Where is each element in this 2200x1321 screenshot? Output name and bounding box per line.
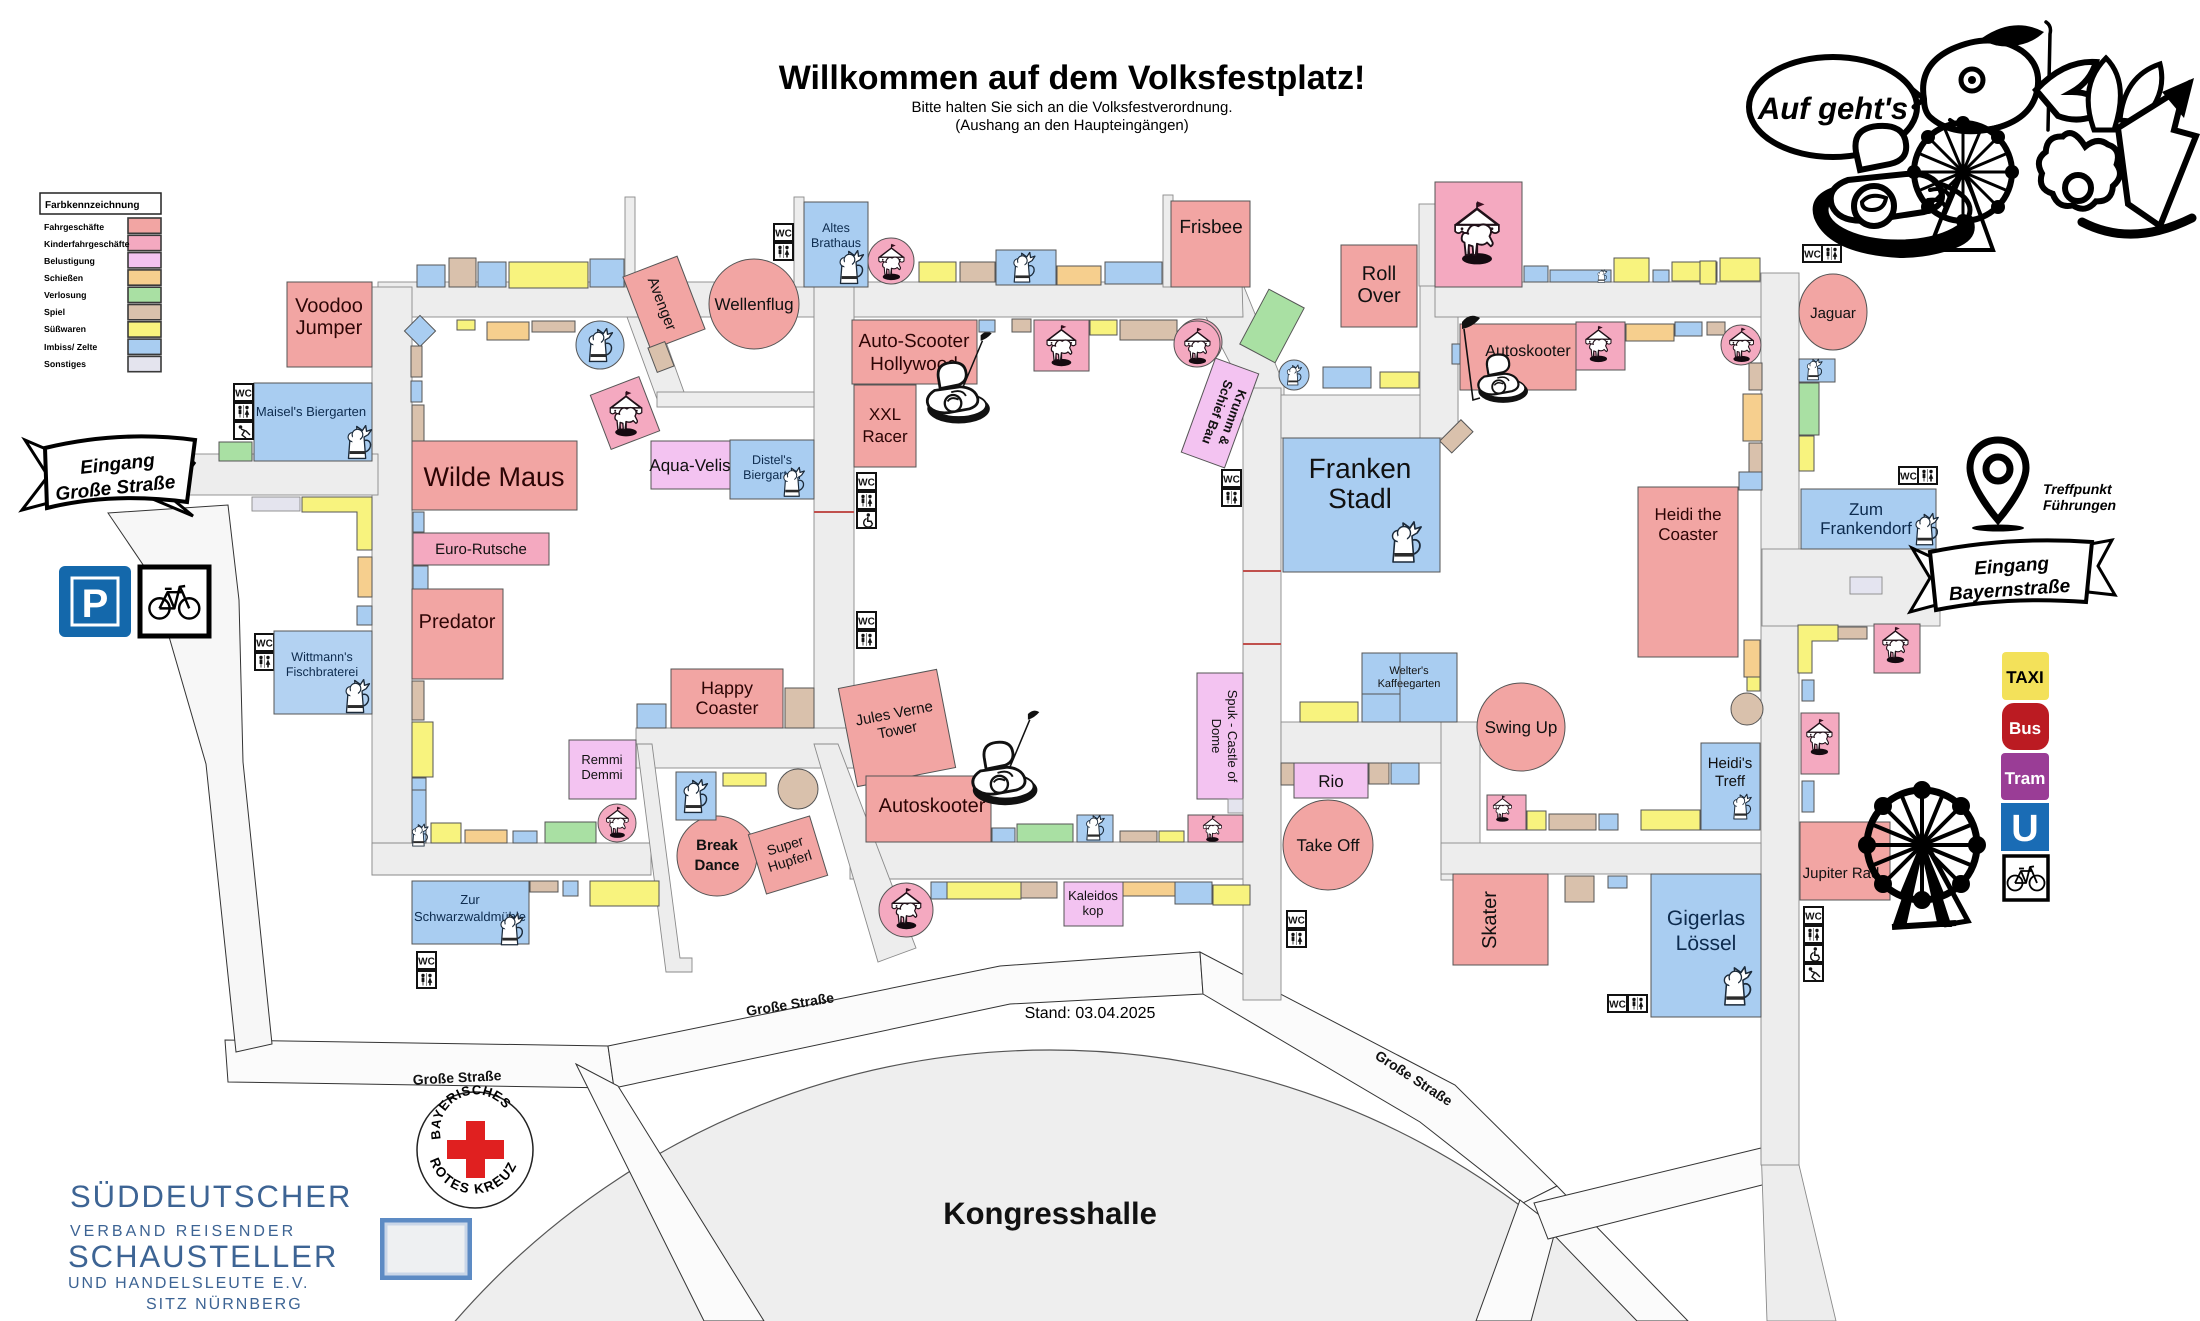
svg-text:Zum: Zum [1849,500,1883,519]
svg-text:Wilde Maus: Wilde Maus [423,462,564,492]
svg-text:Verlosung: Verlosung [44,290,87,300]
svg-text:kop: kop [1083,903,1104,918]
svg-text:Wellenflug: Wellenflug [714,295,793,314]
svg-text:SITZ NÜRNBERG: SITZ NÜRNBERG [146,1295,303,1313]
svg-text:Happy: Happy [701,678,753,698]
svg-text:Heidi the: Heidi the [1654,505,1721,524]
svg-text:Autoskooter: Autoskooter [879,795,986,817]
svg-text:Frisbee: Frisbee [1179,217,1242,238]
svg-text:Swing Up: Swing Up [1485,718,1558,737]
svg-text:Racer: Racer [862,427,908,446]
svg-text:SCHAUSTELLER: SCHAUSTELLER [68,1239,338,1274]
svg-text:Wittmann's: Wittmann's [291,650,352,664]
svg-text:Brathaus: Brathaus [811,236,861,250]
svg-text:Fischbraterei: Fischbraterei [286,665,358,679]
svg-text:Bitte halten Sie sich an die V: Bitte halten Sie sich an die Volksfestve… [911,99,1232,116]
svg-text:Predator: Predator [419,611,496,633]
svg-text:P: P [82,582,109,626]
svg-text:Remmi: Remmi [581,752,622,767]
svg-text:Imbiss/ Zelte: Imbiss/ Zelte [44,342,97,352]
svg-text:Rio: Rio [1318,772,1344,791]
svg-text:Heidi's: Heidi's [1708,755,1753,772]
svg-text:U: U [2011,808,2038,850]
svg-text:Coaster: Coaster [695,698,758,718]
svg-text:Stadl: Stadl [1328,483,1392,514]
svg-text:Sonstiges: Sonstiges [44,359,86,369]
svg-text:Führungen: Führungen [2043,497,2116,513]
svg-text:Take Off: Take Off [1297,836,1360,855]
svg-text:Lössel: Lössel [1676,932,1737,955]
svg-text:Schießen: Schießen [44,273,83,283]
svg-text:Bus: Bus [2009,719,2041,738]
svg-text:Skater: Skater [1479,891,1501,949]
svg-text:Belustigung: Belustigung [44,256,95,266]
svg-text:Auf geht's: Auf geht's [1757,91,1908,126]
svg-text:Coaster: Coaster [1658,525,1718,544]
svg-text:Stand: 03.04.2025: Stand: 03.04.2025 [1025,1005,1156,1022]
svg-text:Treffpunkt: Treffpunkt [2043,481,2113,497]
svg-text:Jaguar: Jaguar [1810,305,1856,322]
svg-text:Altes: Altes [822,221,850,235]
svg-text:Over: Over [1357,285,1401,307]
svg-text:Frankendorf: Frankendorf [1820,519,1912,538]
svg-text:Spuk - Castle of: Spuk - Castle of [1225,690,1240,783]
svg-text:Treff: Treff [1715,773,1746,790]
svg-text:Break: Break [696,837,738,854]
svg-text:SÜDDEUTSCHER: SÜDDEUTSCHER [70,1179,352,1214]
svg-text:Auto-Scooter: Auto-Scooter [859,331,971,352]
svg-text:Kongresshalle: Kongresshalle [943,1196,1157,1231]
svg-text:(Aushang an den Haupteingängen: (Aushang an den Haupteingängen) [955,117,1189,134]
svg-text:Fahrgeschäfte: Fahrgeschäfte [44,222,104,232]
svg-text:Kinderfahrgeschäfte: Kinderfahrgeschäfte [44,239,130,249]
svg-text:Kaleidos: Kaleidos [1068,888,1118,903]
svg-text:Maisel's Biergarten: Maisel's Biergarten [256,404,366,419]
svg-text:Euro-Rutsche: Euro-Rutsche [435,541,527,558]
svg-text:VERBAND REISENDER: VERBAND REISENDER [70,1223,296,1240]
svg-text:Zur: Zur [460,892,480,907]
svg-text:Distel's: Distel's [752,453,792,467]
svg-text:XXL: XXL [869,405,901,424]
svg-text:Aqua-Velis: Aqua-Velis [649,456,730,475]
svg-text:Dome: Dome [1209,719,1224,754]
svg-text:Jumper: Jumper [296,317,363,339]
svg-text:Gigerlas: Gigerlas [1667,907,1745,930]
svg-text:Welter's: Welter's [1389,665,1429,677]
svg-text:Farbkennzeichnung: Farbkennzeichnung [45,200,139,211]
svg-text:Dance: Dance [694,857,739,874]
svg-text:Süßwaren: Süßwaren [44,324,86,334]
svg-text:Voodoo: Voodoo [295,295,363,317]
svg-text:TAXI: TAXI [2006,668,2043,687]
svg-text:Kaffeegarten: Kaffeegarten [1378,678,1441,690]
svg-text:Demmi: Demmi [581,767,622,782]
svg-text:Tram: Tram [2005,769,2046,788]
svg-text:UND HANDELSLEUTE E.V.: UND HANDELSLEUTE E.V. [68,1275,309,1292]
svg-text:Franken: Franken [1309,453,1412,484]
svg-text:Willkommen auf dem Volksfestpl: Willkommen auf dem Volksfestplatz! [779,59,1366,97]
svg-text:Roll: Roll [1362,263,1396,285]
svg-text:Jupiter Rad: Jupiter Rad [1803,865,1880,882]
svg-text:Spiel: Spiel [44,307,65,317]
